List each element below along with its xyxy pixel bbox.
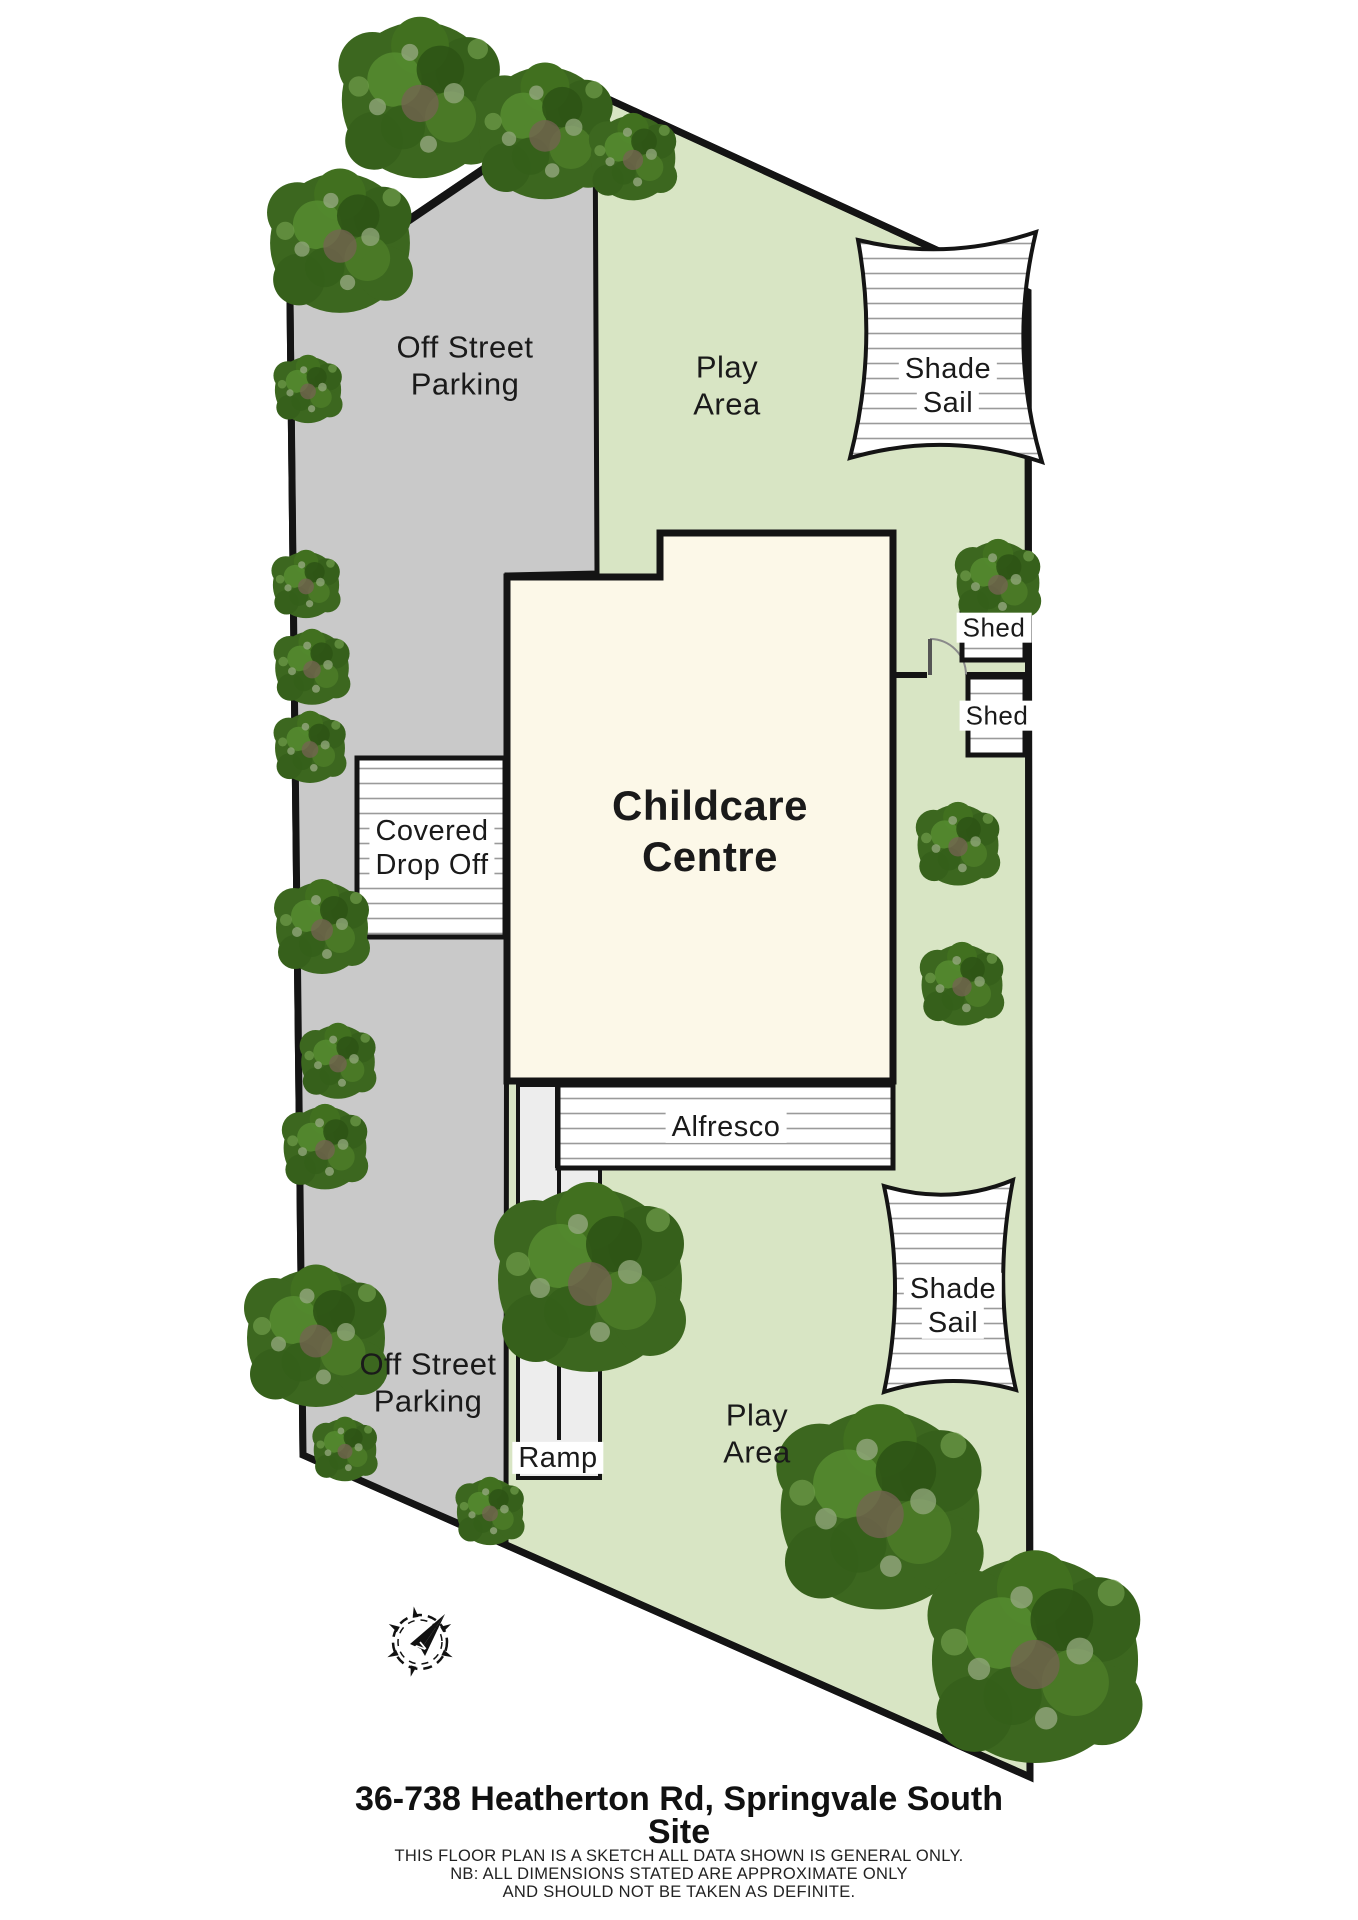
- label-parking-bottom: Off Street Parking: [359, 1346, 496, 1419]
- tree-icon: [274, 879, 370, 974]
- label-shed-bottom: Shed: [960, 701, 1035, 732]
- tree-icon: [300, 1023, 377, 1099]
- label-shade-sail-top: Shade Sail: [899, 352, 997, 420]
- label-play-area-bottom: Play Area: [723, 1397, 790, 1470]
- tree-icon: [273, 355, 342, 423]
- plan-title-line2: Site: [0, 1815, 1358, 1849]
- label-play-area-top: Play Area: [693, 349, 760, 422]
- tree-icon: [589, 113, 677, 200]
- shade-sail-top: [850, 232, 1042, 462]
- disclaimer-line3: AND SHOULD NOT BE TAKEN AS DEFINITE.: [0, 1884, 1358, 1901]
- label-parking-top: Off Street Parking: [396, 329, 533, 402]
- tree-icon: [494, 1182, 686, 1372]
- label-childcare-centre: Childcare Centre: [612, 780, 808, 882]
- label-alfresco: Alfresco: [666, 1110, 787, 1144]
- compass-icon: N: [386, 1606, 454, 1678]
- site-plan-drawing: N: [0, 0, 1358, 1920]
- label-shed-top: Shed: [957, 613, 1032, 644]
- tree-icon: [282, 1104, 368, 1190]
- label-covered-drop-off: Covered Drop Off: [369, 814, 494, 882]
- tree-icon: [271, 550, 340, 618]
- tree-icon: [312, 1417, 377, 1482]
- disclaimer-line2: NB: ALL DIMENSIONS STATED ARE APPROXIMAT…: [0, 1866, 1358, 1883]
- label-ramp: Ramp: [512, 1441, 603, 1475]
- label-shade-sail-bottom: Shade Sail: [904, 1272, 1002, 1340]
- site-plan: N Off Street Parking Play Area Shade Sai…: [0, 0, 1358, 1920]
- tree-icon: [955, 539, 1041, 625]
- tree-icon: [916, 802, 1000, 886]
- tree-icon: [274, 711, 347, 783]
- plan-title-line1: 36-738 Heatherton Rd, Springvale South: [0, 1782, 1358, 1816]
- tree-icon: [920, 942, 1004, 1026]
- tree-icon: [927, 1550, 1142, 1763]
- tree-icon: [274, 629, 351, 705]
- disclaimer-line1: THIS FLOOR PLAN IS A SKETCH ALL DATA SHO…: [0, 1848, 1358, 1865]
- tree-icon: [455, 1477, 524, 1545]
- tree-icon: [267, 169, 413, 313]
